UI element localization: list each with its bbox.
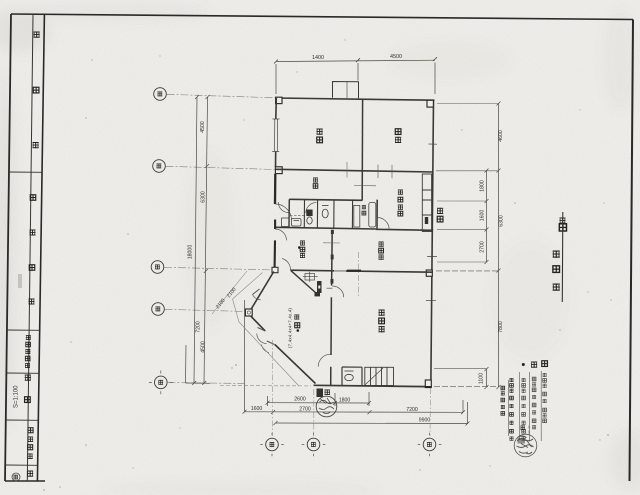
svg-text:1800: 1800	[339, 397, 351, 403]
svg-text:S=1:100: S=1:100	[14, 385, 20, 408]
svg-text:1800: 1800	[480, 180, 486, 192]
svg-text:7200: 7200	[406, 407, 418, 413]
svg-text:6300: 6300	[201, 191, 207, 203]
svg-text:4500: 4500	[390, 54, 402, 60]
svg-text:2700: 2700	[480, 241, 486, 253]
svg-text:(7.4x4.4x4+7.4x.4): (7.4x4.4x4+7.4x.4)	[287, 308, 292, 348]
svg-text:1600: 1600	[251, 406, 263, 412]
svg-text:7200: 7200	[196, 321, 202, 333]
svg-text:4500: 4500	[201, 341, 207, 353]
svg-text:2700: 2700	[299, 406, 311, 412]
svg-text:4600: 4600	[498, 130, 504, 142]
svg-text:18000: 18000	[188, 245, 194, 260]
svg-text:1600: 1600	[480, 210, 486, 222]
svg-text:1100: 1100	[479, 373, 485, 384]
svg-text:6300: 6300	[499, 215, 505, 227]
svg-text:2600: 2600	[294, 397, 306, 403]
svg-text:4500: 4500	[200, 121, 206, 133]
svg-text:7800: 7800	[498, 321, 504, 333]
svg-text:9900: 9900	[419, 418, 431, 424]
svg-text:1400: 1400	[312, 55, 324, 61]
